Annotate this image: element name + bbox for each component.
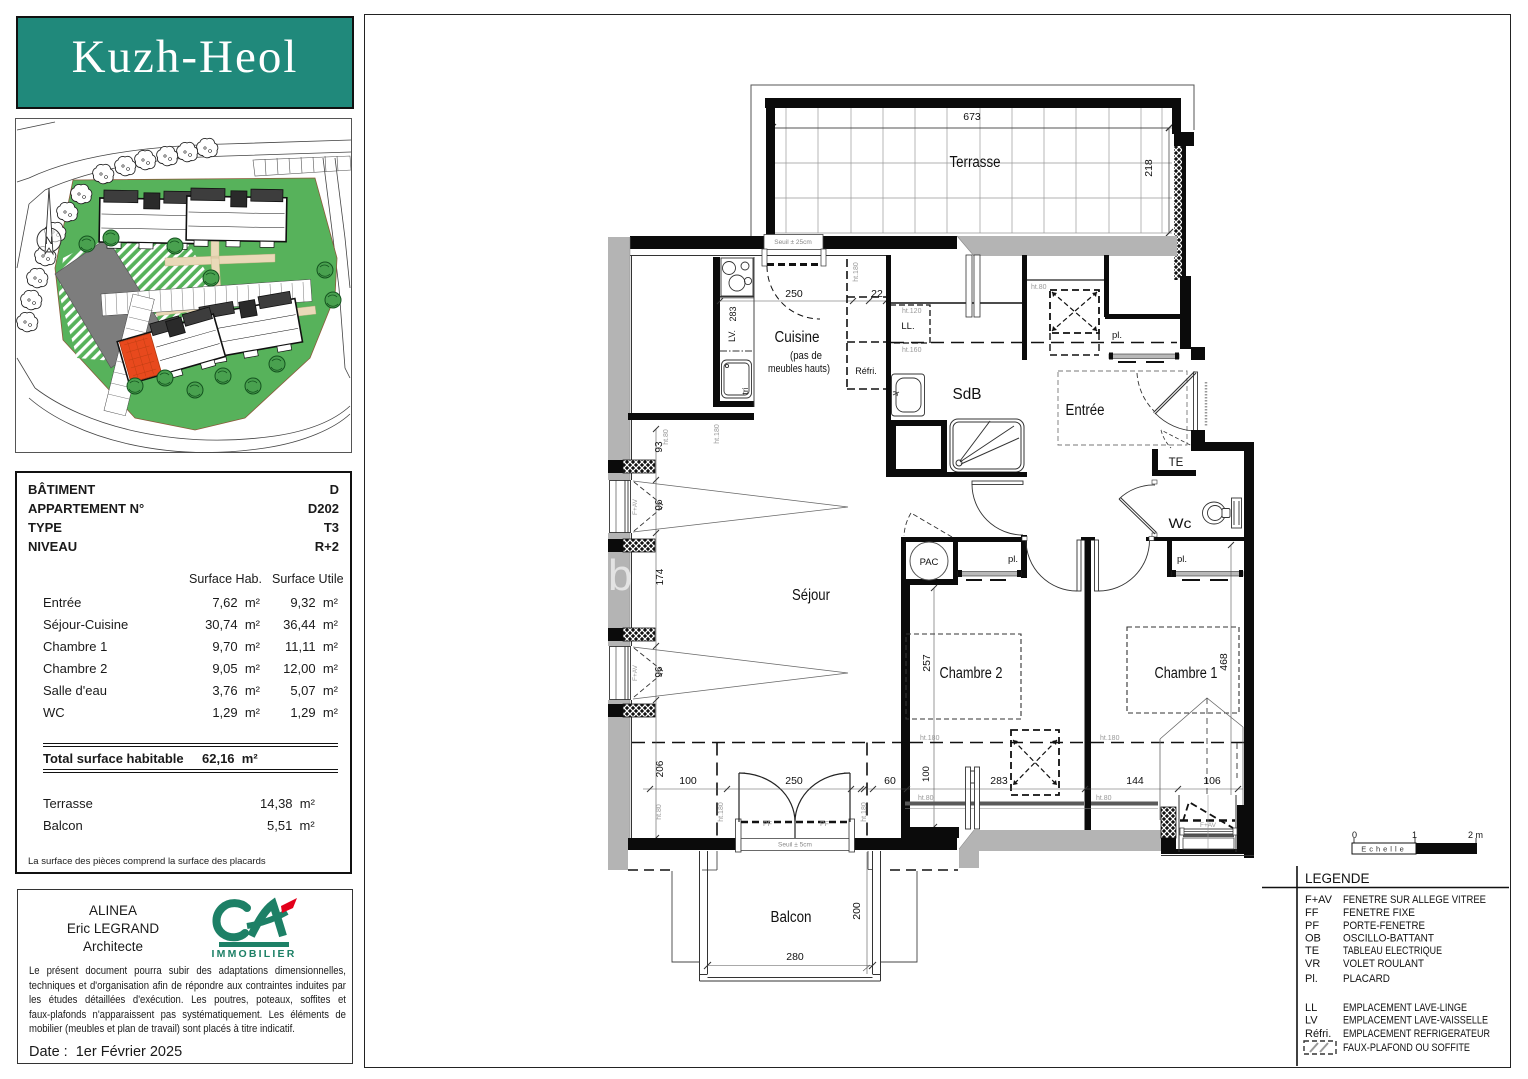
svg-text:TABLEAU ELECTRIQUE: TABLEAU ELECTRIQUE [1343,945,1442,957]
svg-text:F+AV: F+AV [632,664,639,681]
svg-text:ht.180: ht.180 [714,424,721,444]
svg-text:FENETRE SUR ALLEGE VITREE: FENETRE SUR ALLEGE VITREE [1343,894,1486,906]
svg-text:LL: LL [1305,1002,1317,1014]
svg-text:100: 100 [679,775,697,787]
svg-text:b: b [608,551,632,600]
svg-text:LEGENDE: LEGENDE [1305,871,1370,886]
svg-text:F+AV: F+AV [1200,822,1217,829]
svg-text:Balcon: Balcon [771,909,812,926]
svg-text:ht.80: ht.80 [663,429,670,445]
svg-text:206: 206 [655,760,666,777]
svg-text:PF: PF [1305,920,1319,932]
svg-text:ht.180: ht.180 [1100,735,1120,742]
svg-text:468: 468 [1218,653,1230,671]
svg-text:22: 22 [871,288,883,300]
svg-text:VOLET ROULANT: VOLET ROULANT [1343,958,1424,970]
svg-text:VR: VR [1305,958,1320,970]
svg-text:PORTE-FENETRE: PORTE-FENETRE [1343,920,1425,932]
svg-text:TE: TE [1169,457,1184,469]
svg-text:EMPLACEMENT LAVE-LINGE: EMPLACEMENT LAVE-LINGE [1343,1002,1467,1014]
svg-text:FAUX-PLAFOND OU SOFFITE: FAUX-PLAFOND OU SOFFITE [1343,1042,1470,1054]
svg-text:ht.180: ht.180 [718,802,725,822]
svg-text:tri: tri [740,387,750,394]
svg-text:SdB: SdB [953,386,982,403]
svg-text:218: 218 [1143,159,1155,177]
svg-text:ht.180: ht.180 [853,262,860,282]
svg-text:1: 1 [1412,830,1417,840]
svg-text:FENETRE FIXE: FENETRE FIXE [1343,907,1415,919]
svg-text:IMMOBILIER: IMMOBILIER [212,948,297,958]
svg-text:LL.: LL. [901,321,914,332]
svg-text:200: 200 [851,902,863,920]
svg-text:96: 96 [654,499,665,511]
svg-text:LV: LV [1305,1015,1318,1027]
svg-text:ht.80: ht.80 [918,795,934,802]
svg-text:0: 0 [1352,830,1357,840]
svg-text:100: 100 [921,766,932,782]
svg-text:Séjour: Séjour [792,587,830,604]
svg-text:144: 144 [1126,775,1144,787]
svg-text:Pl.: Pl. [1305,973,1318,985]
svg-text:257: 257 [921,654,933,672]
svg-text:106: 106 [1203,775,1221,787]
svg-text:meubles hauts): meubles hauts) [768,363,830,375]
svg-text:ht.80: ht.80 [656,804,663,820]
svg-text:OSCILLO-BATTANT: OSCILLO-BATTANT [1343,933,1434,945]
svg-text:Réfri.: Réfri. [1305,1028,1331,1040]
svg-text:Cuisine: Cuisine [775,329,820,346]
svg-text:Terrasse: Terrasse [950,154,1001,171]
svg-text:F+AV: F+AV [1305,894,1333,906]
svg-text:PLACARD: PLACARD [1343,973,1390,985]
svg-text:280: 280 [786,951,804,963]
svg-text:PF: PF [763,821,772,828]
svg-text:ht.80: ht.80 [1096,795,1112,802]
svg-text:PAC: PAC [920,557,939,568]
svg-text:ht.160: ht.160 [902,347,922,354]
svg-text:ht.180: ht.180 [861,802,868,822]
svg-text:TE: TE [1305,945,1319,957]
svg-text:EMPLACEMENT LAVE-VAISSELLE: EMPLACEMENT LAVE-VAISSELLE [1343,1015,1488,1027]
svg-text:ht.120: ht.120 [902,308,922,315]
svg-text:Chambre 1: Chambre 1 [1155,665,1218,682]
svg-text:Seuil ± 25cm: Seuil ± 25cm [774,239,812,246]
svg-text:250: 250 [785,288,803,300]
svg-text:FF: FF [1305,907,1319,919]
svg-text:LV.: LV. [727,330,737,342]
svg-text:pl.: pl. [1112,330,1122,341]
svg-text:Réfri.: Réfri. [855,366,877,376]
svg-text:Echelle: Echelle [1361,845,1407,854]
svg-text:2 m: 2 m [1468,830,1483,840]
svg-text:250: 250 [785,775,803,787]
svg-text:174: 174 [655,568,666,585]
svg-text:F+AV: F+AV [632,498,639,515]
svg-text:283: 283 [728,306,738,321]
svg-text:96: 96 [654,666,665,678]
svg-text:Seuil ± 5cm: Seuil ± 5cm [778,842,812,849]
svg-text:Chambre 2: Chambre 2 [940,665,1003,682]
svg-text:OB: OB [1305,933,1321,945]
svg-text:ht.180: ht.180 [920,735,940,742]
svg-text:673: 673 [963,111,981,123]
svg-text:60: 60 [884,775,896,787]
svg-text:N: N [45,235,53,247]
svg-text:Wc: Wc [1169,516,1192,531]
svg-text:283: 283 [990,775,1008,787]
svg-text:PF: PF [820,821,829,828]
svg-text:pl.: pl. [1177,554,1187,565]
svg-text:(pas de: (pas de [790,350,822,362]
svg-text:ht.80: ht.80 [1031,284,1047,291]
svg-text:pl.: pl. [1008,554,1018,565]
svg-text:EMPLACEMENT REFRIGERATEUR: EMPLACEMENT REFRIGERATEUR [1343,1028,1490,1040]
svg-text:Entrée: Entrée [1066,402,1105,419]
